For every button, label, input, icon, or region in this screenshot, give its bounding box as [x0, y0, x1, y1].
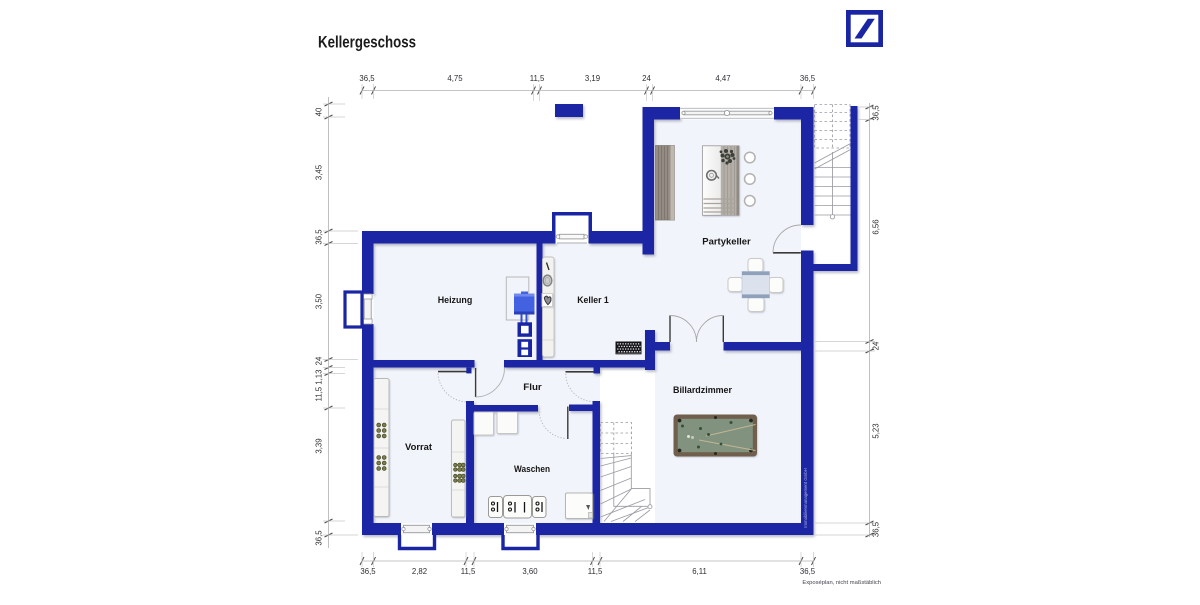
- svg-text:2,82: 2,82: [412, 567, 427, 576]
- svg-text:6,11: 6,11: [692, 567, 707, 576]
- svg-text:36,5: 36,5: [872, 105, 881, 121]
- svg-text:24: 24: [872, 341, 881, 350]
- svg-text:Partykeller: Partykeller: [702, 237, 751, 247]
- svg-text:Kellergeschoss: Kellergeschoss: [318, 34, 416, 52]
- svg-text:3,50: 3,50: [315, 293, 324, 309]
- svg-text:24: 24: [315, 356, 324, 365]
- svg-text:Vorrat: Vorrat: [405, 442, 432, 452]
- svg-text:11,5: 11,5: [530, 74, 545, 83]
- svg-text:3,19: 3,19: [585, 74, 600, 83]
- svg-text:Immobilienmanagement GmbH: Immobilienmanagement GmbH: [803, 468, 808, 527]
- svg-text:36,5: 36,5: [872, 521, 881, 537]
- svg-text:3,60: 3,60: [522, 567, 538, 576]
- svg-text:36,5: 36,5: [800, 74, 816, 83]
- svg-text:11,5: 11,5: [588, 567, 603, 576]
- svg-text:11,5 1,13: 11,5 1,13: [315, 370, 324, 402]
- svg-text:3,39: 3,39: [315, 438, 324, 453]
- svg-text:36,5: 36,5: [800, 567, 816, 576]
- svg-text:Billardzimmer: Billardzimmer: [673, 385, 732, 395]
- svg-text:3,45: 3,45: [315, 164, 324, 180]
- svg-text:Flur: Flur: [523, 382, 542, 392]
- svg-text:5,23: 5,23: [872, 423, 881, 438]
- svg-text:6,56: 6,56: [872, 219, 881, 234]
- svg-text:Exposéplan, nicht maßstäblich: Exposéplan, nicht maßstäblich: [802, 580, 881, 586]
- svg-text:36,5: 36,5: [359, 74, 375, 83]
- svg-text:Keller 1: Keller 1: [577, 295, 609, 305]
- svg-text:11,5: 11,5: [461, 567, 476, 576]
- svg-text:4,75: 4,75: [447, 74, 463, 83]
- svg-text:36,5: 36,5: [315, 229, 324, 245]
- svg-text:40: 40: [315, 107, 324, 116]
- svg-text:Heizung: Heizung: [438, 295, 473, 305]
- svg-text:36,5: 36,5: [360, 567, 376, 576]
- svg-text:Waschen: Waschen: [514, 464, 550, 474]
- svg-text:36,5: 36,5: [315, 530, 324, 546]
- svg-text:24: 24: [642, 74, 651, 83]
- svg-text:4,47: 4,47: [715, 74, 730, 83]
